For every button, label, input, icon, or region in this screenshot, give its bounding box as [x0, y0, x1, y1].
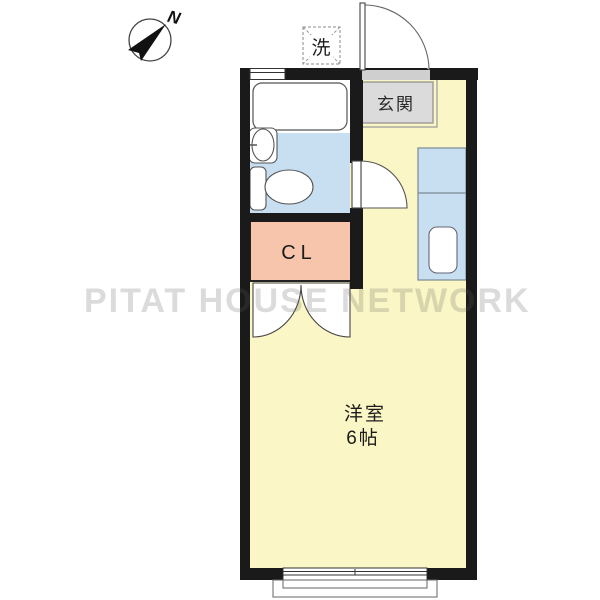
wall-right — [466, 68, 477, 580]
watermark-text: PITAT HOUSE NETWORK — [84, 282, 531, 320]
toilet-bowl — [265, 170, 313, 204]
floor-plan-drawing: N 玄関 CL — [0, 0, 600, 600]
entrance-door-swing-arc — [364, 5, 429, 70]
washer-label: 洗 — [311, 37, 330, 59]
bathroom-window — [250, 69, 285, 80]
bathroom-door-leaf — [352, 161, 361, 208]
bathroom-window-frame — [250, 69, 285, 80]
washer-space: 洗 — [303, 27, 340, 64]
toilet-tank — [250, 167, 266, 210]
wall-bathroom-bottom — [240, 213, 363, 222]
kitchen-sink — [429, 227, 457, 273]
entrance-area: 玄関 — [360, 80, 437, 127]
room-name-label: 洋室 — [344, 403, 386, 425]
entrance-label: 玄関 — [377, 95, 415, 114]
floor-plan-page: N 玄関 CL — [0, 0, 600, 600]
closet-label: CL — [281, 242, 317, 264]
balcony-inner-outline — [283, 580, 427, 588]
compass: N — [128, 7, 183, 61]
entrance-threshold — [362, 70, 430, 80]
entrance-door-leaf — [360, 3, 365, 70]
bathtub — [253, 83, 347, 130]
kitchen — [418, 148, 466, 280]
balcony-window — [273, 568, 437, 597]
bathroom — [247, 80, 350, 213]
room-size-label: 6帖 — [346, 427, 380, 449]
wall-bathroom-right-upper — [350, 78, 363, 163]
compass-north-label: N — [166, 7, 183, 29]
wall-left — [240, 68, 250, 580]
